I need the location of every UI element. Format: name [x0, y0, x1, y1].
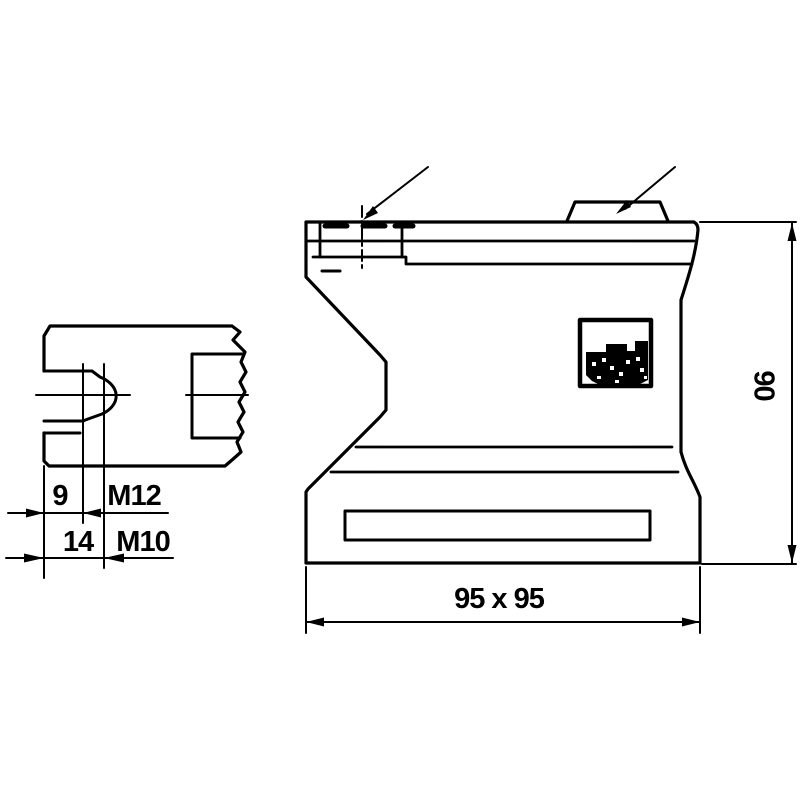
- leader-line-slot: [363, 167, 428, 220]
- front-view: [306, 167, 797, 633]
- leader-line-boss: [616, 167, 675, 214]
- top-boss-outline: [567, 202, 668, 221]
- dim-total-depth-label: 14: [58, 528, 98, 557]
- thread-lower-label: M10: [112, 528, 174, 557]
- dim-footprint-label: 95 x 95: [444, 585, 554, 614]
- thread-upper-label: M12: [102, 482, 166, 511]
- technical-drawing-page: 9 M12 14 M10 95 x 95 90: [0, 0, 800, 800]
- grip-insert-patch: [580, 320, 651, 386]
- drawing-linework: [0, 0, 800, 800]
- dim-height-label: 90: [749, 366, 778, 406]
- dim-step-depth-label: 9: [44, 482, 76, 511]
